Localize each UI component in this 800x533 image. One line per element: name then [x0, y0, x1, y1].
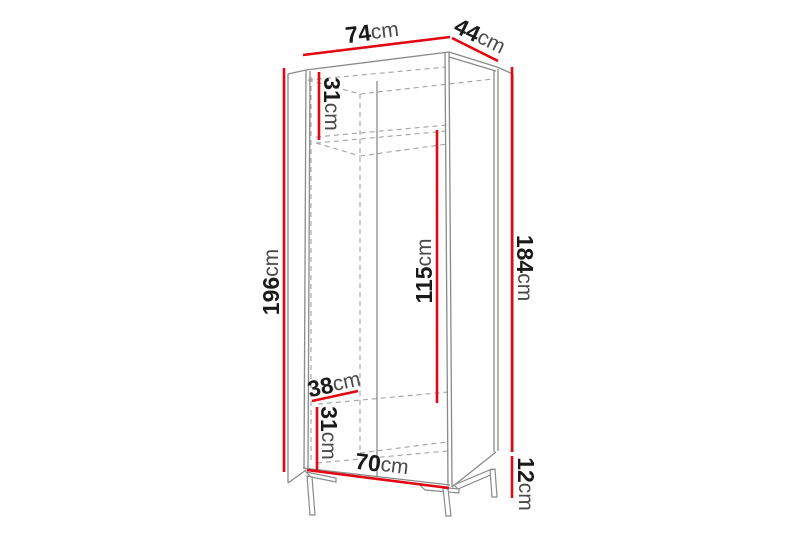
dimension-label-inner-depth: 38cm	[305, 366, 363, 403]
top-shelf-left-edge	[316, 143, 360, 156]
dimension-labels: 74cm 44cm 196cm 31cm 115cm 184cm 38cm 3	[258, 13, 539, 511]
dimension-label-hanging-space-height: 115cm	[411, 238, 437, 303]
wardrobe-dimension-diagram: 74cm 44cm 196cm 31cm 115cm 184cm 38cm 3	[0, 0, 800, 533]
back-right-leg-post	[490, 469, 497, 497]
top-right-edge	[449, 52, 513, 74]
left-front-edge-inner	[308, 71, 310, 468]
right-front-edge-inner	[445, 53, 448, 486]
right-front-edge-outer	[449, 52, 452, 487]
top-shelf-underside-edge	[316, 131, 447, 143]
top-front-edge	[306, 52, 449, 70]
dimension-label-total-height: 196cm	[258, 249, 284, 315]
dimension-label-top-compartment-height: 31cm	[319, 77, 345, 131]
wardrobe-drawing: 74cm 44cm 196cm 31cm 115cm 184cm 38cm 3	[0, 0, 800, 533]
left-front-edge-outer	[304, 70, 306, 469]
back-right-leg-bar	[454, 469, 495, 489]
top-shelf-back-edge	[360, 144, 447, 156]
left-panel-bottom-edge	[288, 470, 306, 483]
dimension-label-leg-height: 12cm	[513, 457, 539, 511]
dimension-label-body-height: 184cm	[512, 235, 538, 301]
top-panel-underside-back-edge	[360, 79, 493, 94]
left-panel-top-edge	[288, 70, 306, 74]
dimension-label-bottom-compartment-height: 31cm	[316, 406, 342, 460]
front-left-leg-post	[307, 476, 315, 515]
